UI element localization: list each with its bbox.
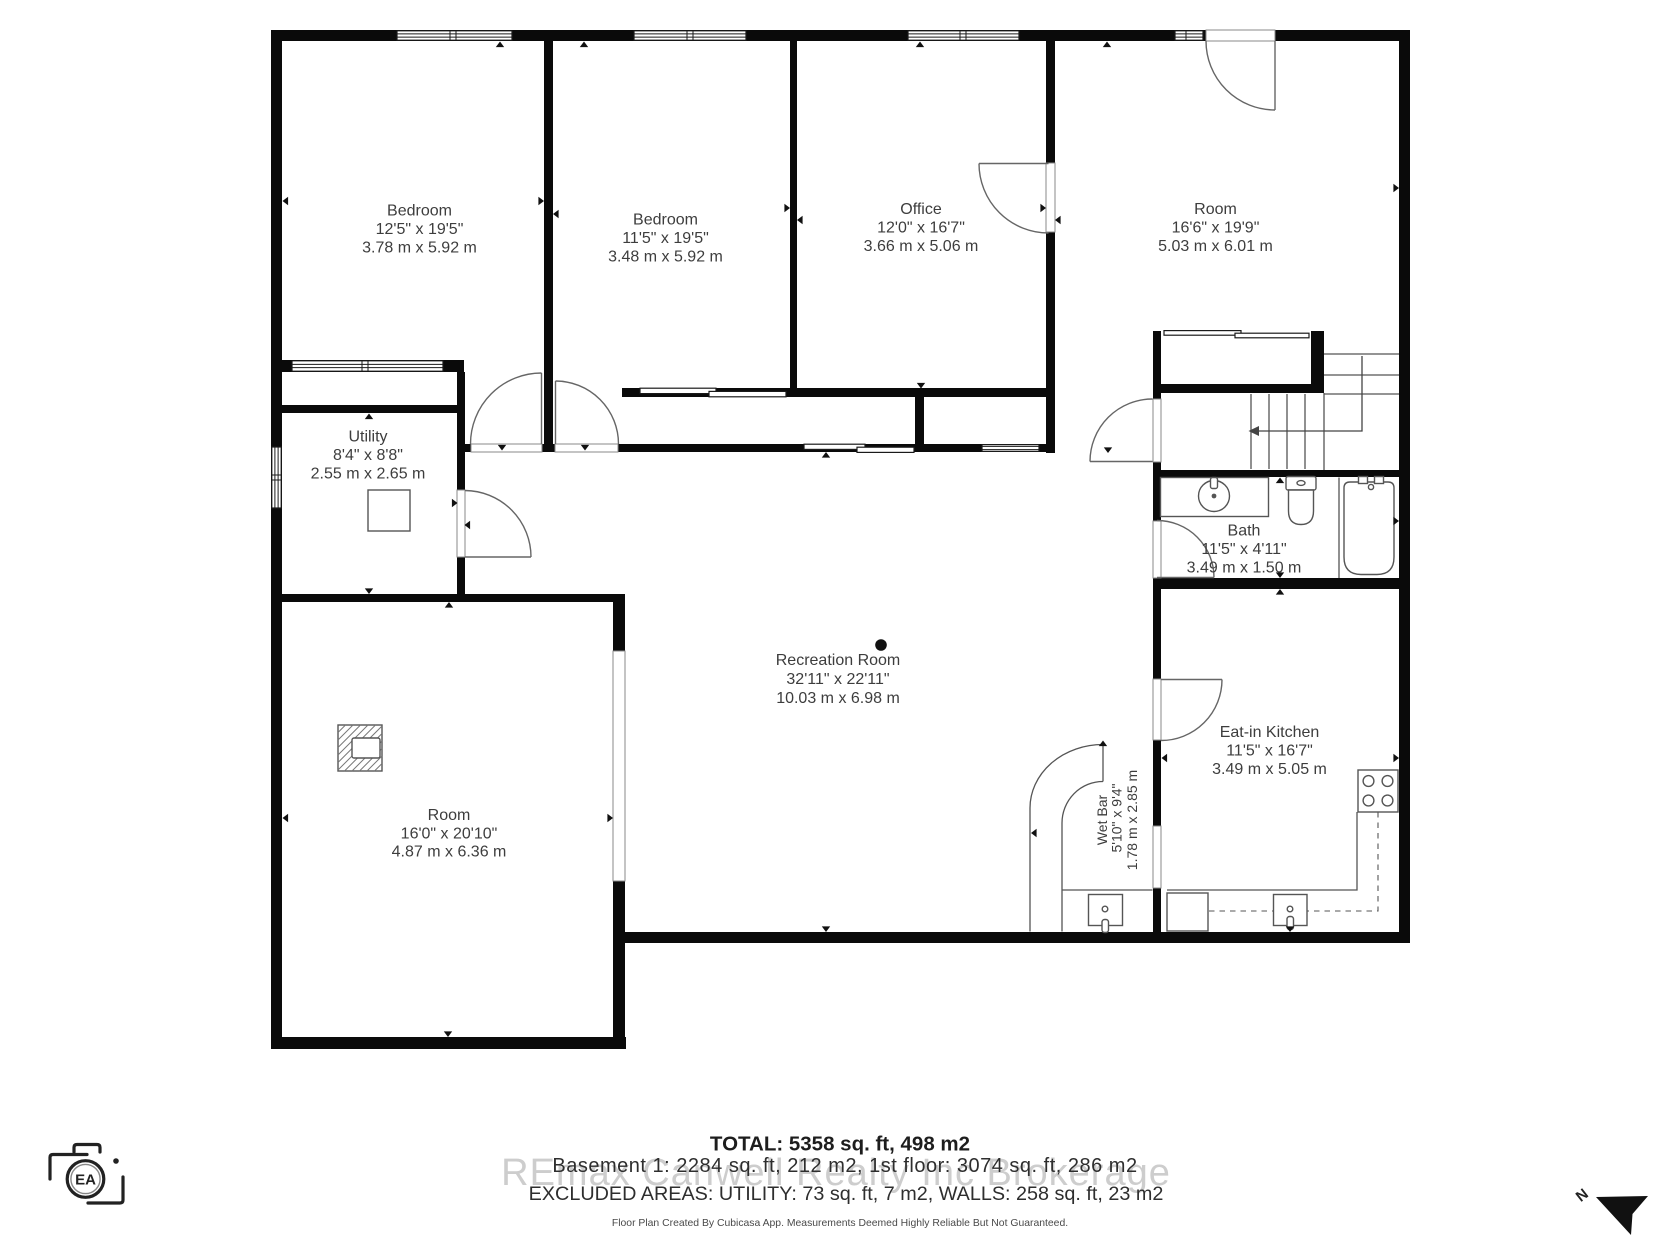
svg-text:11'5" x 19'5": 11'5" x 19'5"	[622, 230, 709, 247]
svg-text:Floor Plan Created By Cubicasa: Floor Plan Created By Cubicasa App. Meas…	[612, 1218, 1068, 1229]
svg-text:Recreation Room: Recreation Room	[776, 652, 901, 669]
svg-text:TOTAL: 5358 sq. ft, 498 m2: TOTAL: 5358 sq. ft, 498 m2	[710, 1133, 970, 1156]
svg-text:Room: Room	[428, 807, 471, 824]
svg-text:2.55 m x 2.65 m: 2.55 m x 2.65 m	[311, 466, 426, 483]
svg-text:11'5" x 16'7": 11'5" x 16'7"	[1226, 743, 1313, 760]
svg-text:16'6" x 19'9": 16'6" x 19'9"	[1172, 220, 1260, 237]
svg-text:11'5" x 4'11": 11'5" x 4'11"	[1201, 541, 1286, 558]
svg-text:32'11" x 22'11": 32'11" x 22'11"	[786, 671, 889, 688]
svg-text:Bedroom: Bedroom	[633, 212, 698, 229]
svg-text:Eat-in Kitchen: Eat-in Kitchen	[1220, 724, 1320, 741]
svg-text:Office: Office	[900, 201, 942, 218]
svg-text:16'0" x 20'10": 16'0" x 20'10"	[401, 825, 498, 842]
svg-text:12'5" x 19'5": 12'5" x 19'5"	[376, 221, 464, 238]
svg-text:Bath: Bath	[1228, 523, 1261, 540]
svg-text:Bedroom: Bedroom	[387, 203, 452, 220]
svg-text:10.03 m x 6.98 m: 10.03 m x 6.98 m	[776, 690, 900, 707]
svg-text:3.78 m x 5.92 m: 3.78 m x 5.92 m	[362, 240, 477, 257]
svg-text:Room: Room	[1194, 201, 1237, 218]
svg-text:3.48 m x 5.92 m: 3.48 m x 5.92 m	[608, 249, 723, 266]
svg-text:3.66 m x 5.06 m: 3.66 m x 5.06 m	[864, 238, 979, 255]
svg-text:EXCLUDED AREAS: UTILITY: 73 sq: EXCLUDED AREAS: UTILITY: 73 sq. ft, 7 m2…	[529, 1183, 1164, 1205]
svg-text:Utility: Utility	[348, 429, 387, 446]
svg-text:12'0" x 16'7": 12'0" x 16'7"	[877, 220, 965, 237]
svg-text:5.03 m x 6.01 m: 5.03 m x 6.01 m	[1158, 238, 1273, 255]
svg-text:1.78 m x 2.85 m: 1.78 m x 2.85 m	[1124, 770, 1140, 870]
svg-text:3.49 m x 1.50 m: 3.49 m x 1.50 m	[1187, 560, 1302, 577]
svg-text:EA: EA	[75, 1172, 96, 1189]
svg-text:8'4" x 8'8": 8'4" x 8'8"	[333, 447, 403, 464]
svg-text:5'10" x 9'4": 5'10" x 9'4"	[1109, 783, 1125, 852]
svg-text:4.87 m x 6.36 m: 4.87 m x 6.36 m	[392, 844, 507, 861]
svg-text:Basement 1: 2284 sq. ft, 212 m: Basement 1: 2284 sq. ft, 212 m2, 1st flo…	[552, 1155, 1137, 1177]
svg-text:3.49 m x 5.05 m: 3.49 m x 5.05 m	[1212, 761, 1327, 778]
